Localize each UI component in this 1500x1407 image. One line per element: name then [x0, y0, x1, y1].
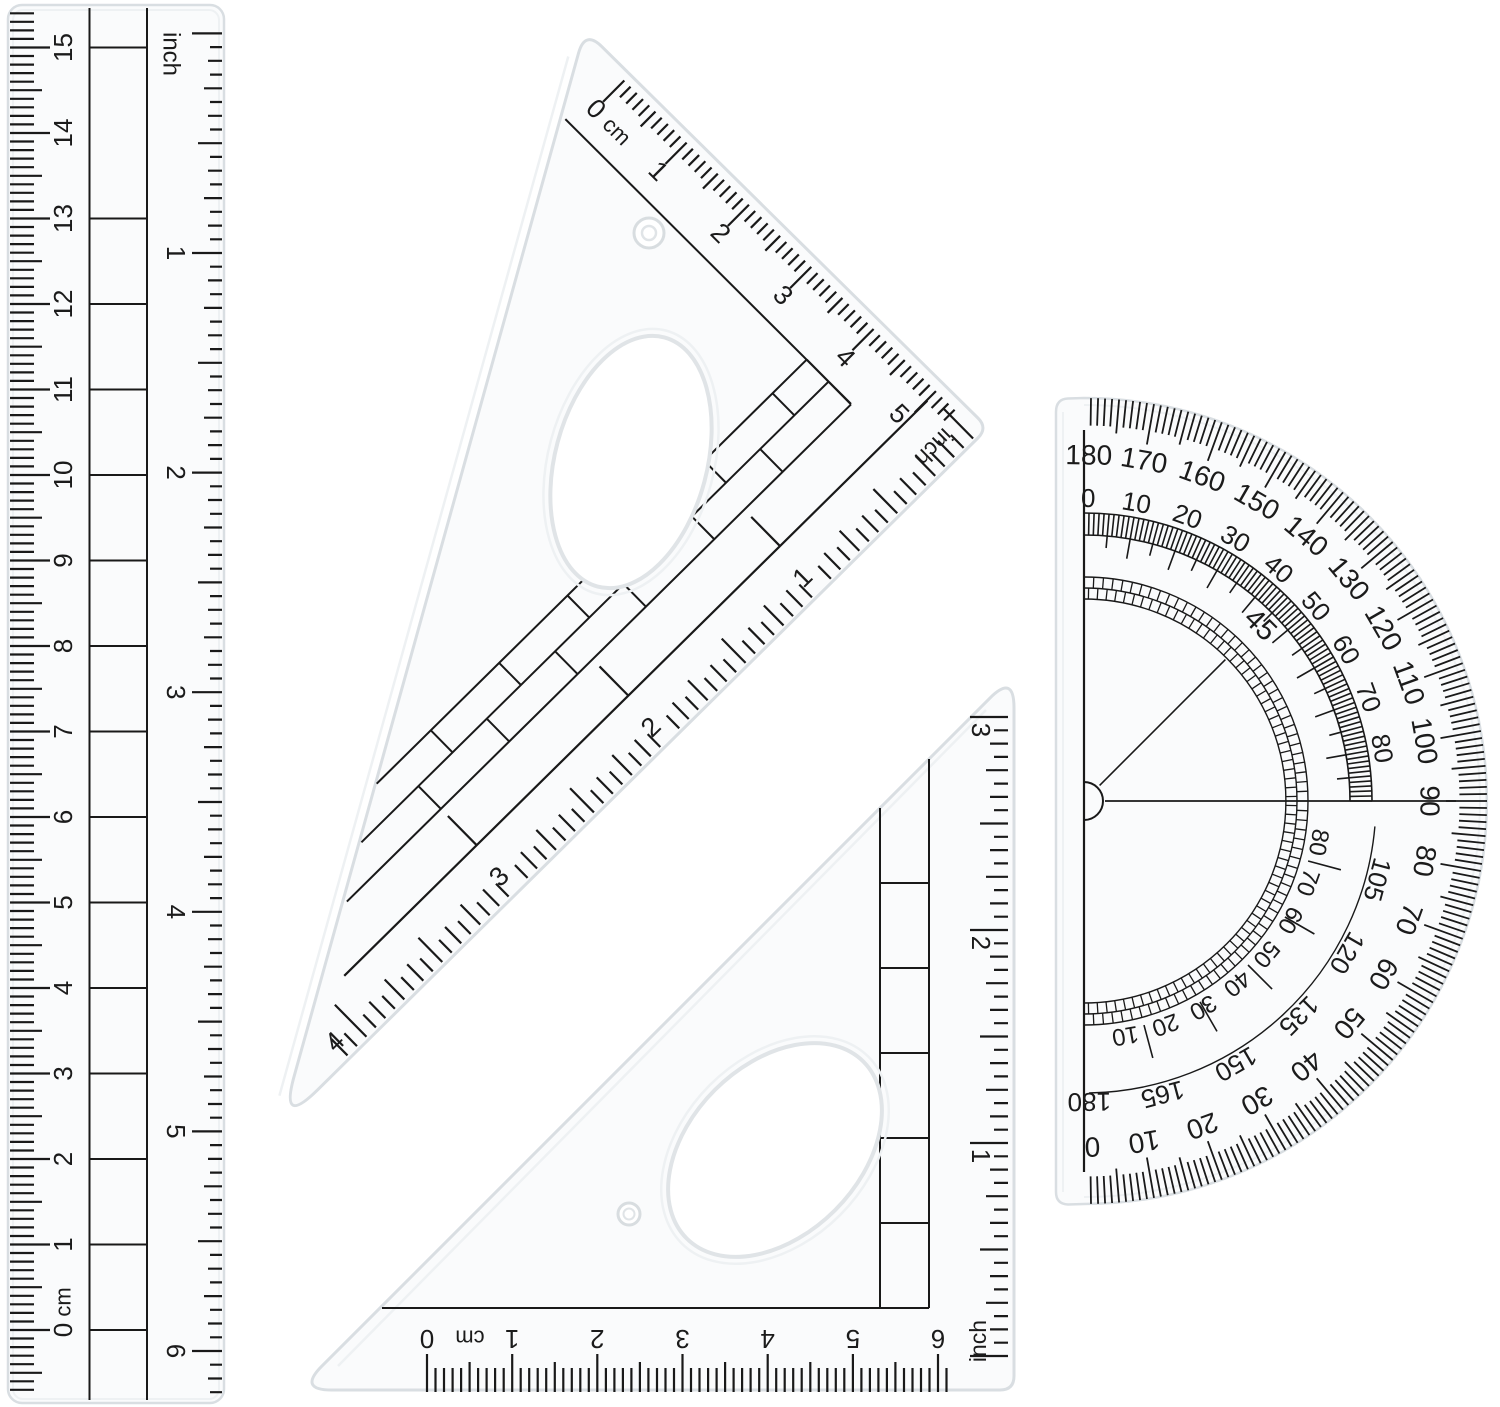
- svg-text:4: 4: [48, 981, 78, 995]
- svg-text:80: 80: [1303, 827, 1334, 858]
- svg-text:10: 10: [1110, 1020, 1141, 1051]
- svg-text:2: 2: [161, 465, 191, 479]
- svg-text:4: 4: [760, 1324, 774, 1354]
- svg-text:0: 0: [420, 1324, 434, 1354]
- svg-text:cm: cm: [51, 1287, 76, 1316]
- svg-text:1: 1: [966, 1149, 996, 1163]
- svg-text:15: 15: [48, 33, 78, 62]
- svg-text:6: 6: [48, 810, 78, 824]
- svg-text:3: 3: [675, 1324, 689, 1354]
- svg-text:90: 90: [1415, 785, 1446, 816]
- svg-text:180: 180: [1067, 1087, 1111, 1118]
- svg-text:2: 2: [590, 1324, 604, 1354]
- svg-text:11: 11: [48, 376, 78, 403]
- svg-text:80: 80: [1365, 732, 1400, 766]
- svg-text:180: 180: [1065, 439, 1112, 471]
- svg-text:0: 0: [1084, 1131, 1100, 1162]
- svg-text:13: 13: [48, 204, 78, 233]
- svg-text:0: 0: [48, 1323, 78, 1337]
- svg-text:7: 7: [48, 724, 78, 738]
- svg-text:9: 9: [48, 553, 78, 567]
- svg-text:10: 10: [48, 461, 78, 490]
- svg-text:1: 1: [48, 1237, 78, 1251]
- svg-text:2: 2: [48, 1152, 78, 1166]
- svg-text:4: 4: [161, 905, 191, 919]
- svg-text:1: 1: [161, 246, 191, 260]
- svg-text:3: 3: [966, 723, 996, 737]
- svg-text:5: 5: [48, 895, 78, 909]
- svg-text:inch: inch: [158, 32, 185, 76]
- svg-text:inch: inch: [965, 1320, 991, 1362]
- svg-text:1: 1: [505, 1324, 519, 1354]
- svg-text:14: 14: [48, 119, 78, 148]
- svg-text:6: 6: [161, 1344, 191, 1358]
- svg-text:6: 6: [931, 1324, 945, 1354]
- svg-text:5: 5: [161, 1124, 191, 1138]
- svg-text:cm: cm: [455, 1326, 484, 1351]
- svg-text:3: 3: [48, 1066, 78, 1080]
- svg-text:8: 8: [48, 639, 78, 653]
- svg-text:10: 10: [1120, 485, 1154, 520]
- svg-text:3: 3: [161, 685, 191, 699]
- svg-text:80: 80: [1407, 843, 1443, 879]
- svg-text:10: 10: [1126, 1124, 1162, 1160]
- svg-text:12: 12: [48, 290, 78, 319]
- svg-text:5: 5: [846, 1324, 860, 1354]
- svg-text:2: 2: [966, 936, 996, 950]
- svg-text:0: 0: [1081, 483, 1096, 513]
